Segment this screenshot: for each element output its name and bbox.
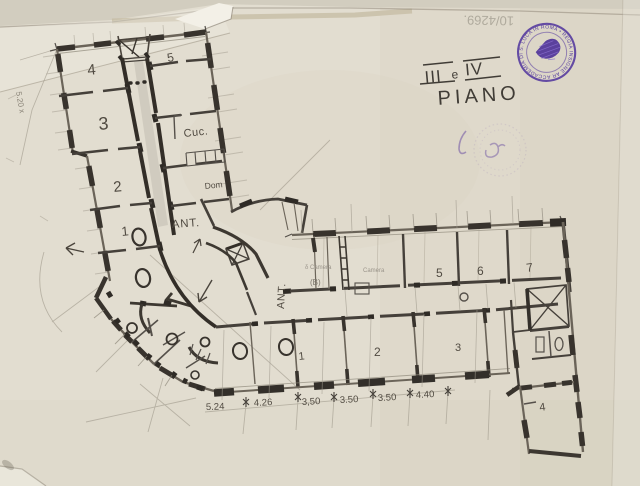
svg-text:Camera: Camera bbox=[363, 268, 385, 274]
svg-text:4.40: 4.40 bbox=[416, 389, 435, 401]
svg-text:2: 2 bbox=[113, 178, 123, 196]
svg-text:3: 3 bbox=[98, 113, 109, 134]
svg-text:ANT.: ANT. bbox=[171, 217, 200, 231]
svg-text:4.26: 4.26 bbox=[254, 397, 273, 409]
svg-text:δ Camera: δ Camera bbox=[305, 265, 332, 271]
svg-text:2: 2 bbox=[374, 345, 381, 359]
svg-text:3: 3 bbox=[455, 342, 461, 354]
svg-text:Cuc.: Cuc. bbox=[183, 125, 209, 140]
svg-text:Dom: Dom bbox=[204, 179, 223, 191]
svg-text:5.24: 5.24 bbox=[206, 401, 225, 413]
svg-text:4: 4 bbox=[87, 61, 97, 79]
svg-text:ANT.: ANT. bbox=[275, 283, 288, 310]
svg-text:10/4269.: 10/4269. bbox=[463, 13, 514, 29]
svg-text:6: 6 bbox=[477, 264, 484, 278]
svg-text:IV: IV bbox=[464, 59, 484, 80]
svg-text:3.50: 3.50 bbox=[340, 394, 359, 406]
svg-text:3,50: 3,50 bbox=[302, 396, 321, 408]
svg-text:(B): (B) bbox=[310, 278, 321, 287]
svg-text:5: 5 bbox=[436, 266, 443, 280]
svg-text:1: 1 bbox=[298, 350, 305, 363]
svg-text:3.50: 3.50 bbox=[378, 392, 397, 404]
